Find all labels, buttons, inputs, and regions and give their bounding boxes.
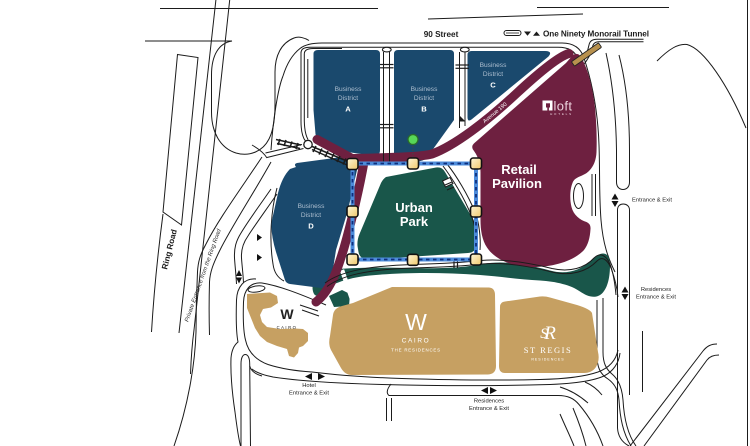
svg-text:District: District [301,212,321,219]
svg-text:RESIDENCES: RESIDENCES [531,358,564,362]
svg-text:Residences: Residences [474,399,504,405]
svg-text:District: District [414,95,434,102]
svg-text:District: District [483,71,503,78]
svg-text:A: A [345,105,351,114]
svg-text:W: W [280,306,294,322]
svg-text:R: R [543,323,556,344]
svg-text:Hotel: Hotel [302,383,316,389]
svg-text:ST REGIS: ST REGIS [524,345,572,355]
svg-text:B: B [421,105,427,114]
svg-text:Business: Business [298,203,325,210]
svg-text:Entrance & Exit: Entrance & Exit [469,406,509,412]
svg-text:Residences: Residences [641,287,671,293]
svg-text:W: W [405,309,427,335]
svg-text:CAIRO: CAIRO [277,325,298,330]
svg-text:90 Street: 90 Street [424,30,459,39]
svg-text:Entrance & Exit: Entrance & Exit [289,391,329,397]
svg-text:Business: Business [335,86,362,93]
svg-text:One Ninety Monorail Tunnel: One Ninety Monorail Tunnel [543,30,649,39]
svg-text:Park: Park [400,214,429,229]
svg-text:CAIRO: CAIRO [402,338,431,345]
svg-text:Retail: Retail [501,162,536,177]
svg-text:THE RESIDENCES: THE RESIDENCES [391,348,441,353]
svg-text:C: C [490,81,496,90]
svg-text:Entrance & Exit: Entrance & Exit [632,198,672,204]
svg-text:Business: Business [411,86,438,93]
svg-text:Pavilion: Pavilion [492,176,542,191]
svg-text:Entrance & Exit: Entrance & Exit [636,295,676,301]
svg-text:District: District [338,95,358,102]
svg-text:HOTELS: HOTELS [550,112,573,116]
svg-text:Business: Business [480,62,507,69]
svg-text:D: D [308,222,314,231]
svg-text:Urban: Urban [395,200,433,215]
